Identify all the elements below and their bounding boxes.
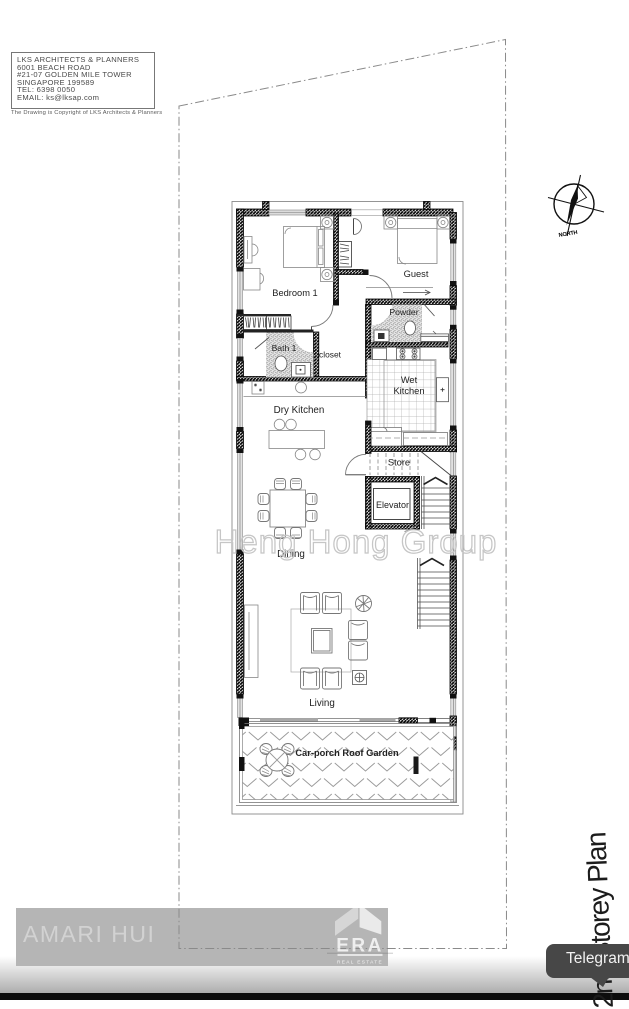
svg-text:Heng Hong Group: Heng Hong Group [215, 523, 498, 560]
svg-text:Bath 1: Bath 1 [272, 343, 297, 353]
svg-text:Living: Living [309, 698, 335, 709]
svg-text:REAL ESTATE: REAL ESTATE [337, 960, 383, 966]
svg-text:Kitchen: Kitchen [393, 386, 424, 396]
svg-text:Guest: Guest [404, 269, 429, 279]
svg-text:Car-porch Roof Garden: Car-porch Roof Garden [295, 748, 399, 758]
svg-text:Dry Kitchen: Dry Kitchen [274, 405, 325, 416]
svg-text:Powder: Powder [389, 307, 418, 317]
svg-text:Elevator: Elevator [376, 500, 409, 510]
svg-text:Bedroom 1: Bedroom 1 [272, 288, 317, 298]
svg-text:closet: closet [319, 350, 342, 360]
svg-text:Store: Store [388, 458, 410, 468]
svg-text:Wet: Wet [401, 375, 418, 385]
svg-text:NORTH: NORTH [558, 230, 578, 239]
